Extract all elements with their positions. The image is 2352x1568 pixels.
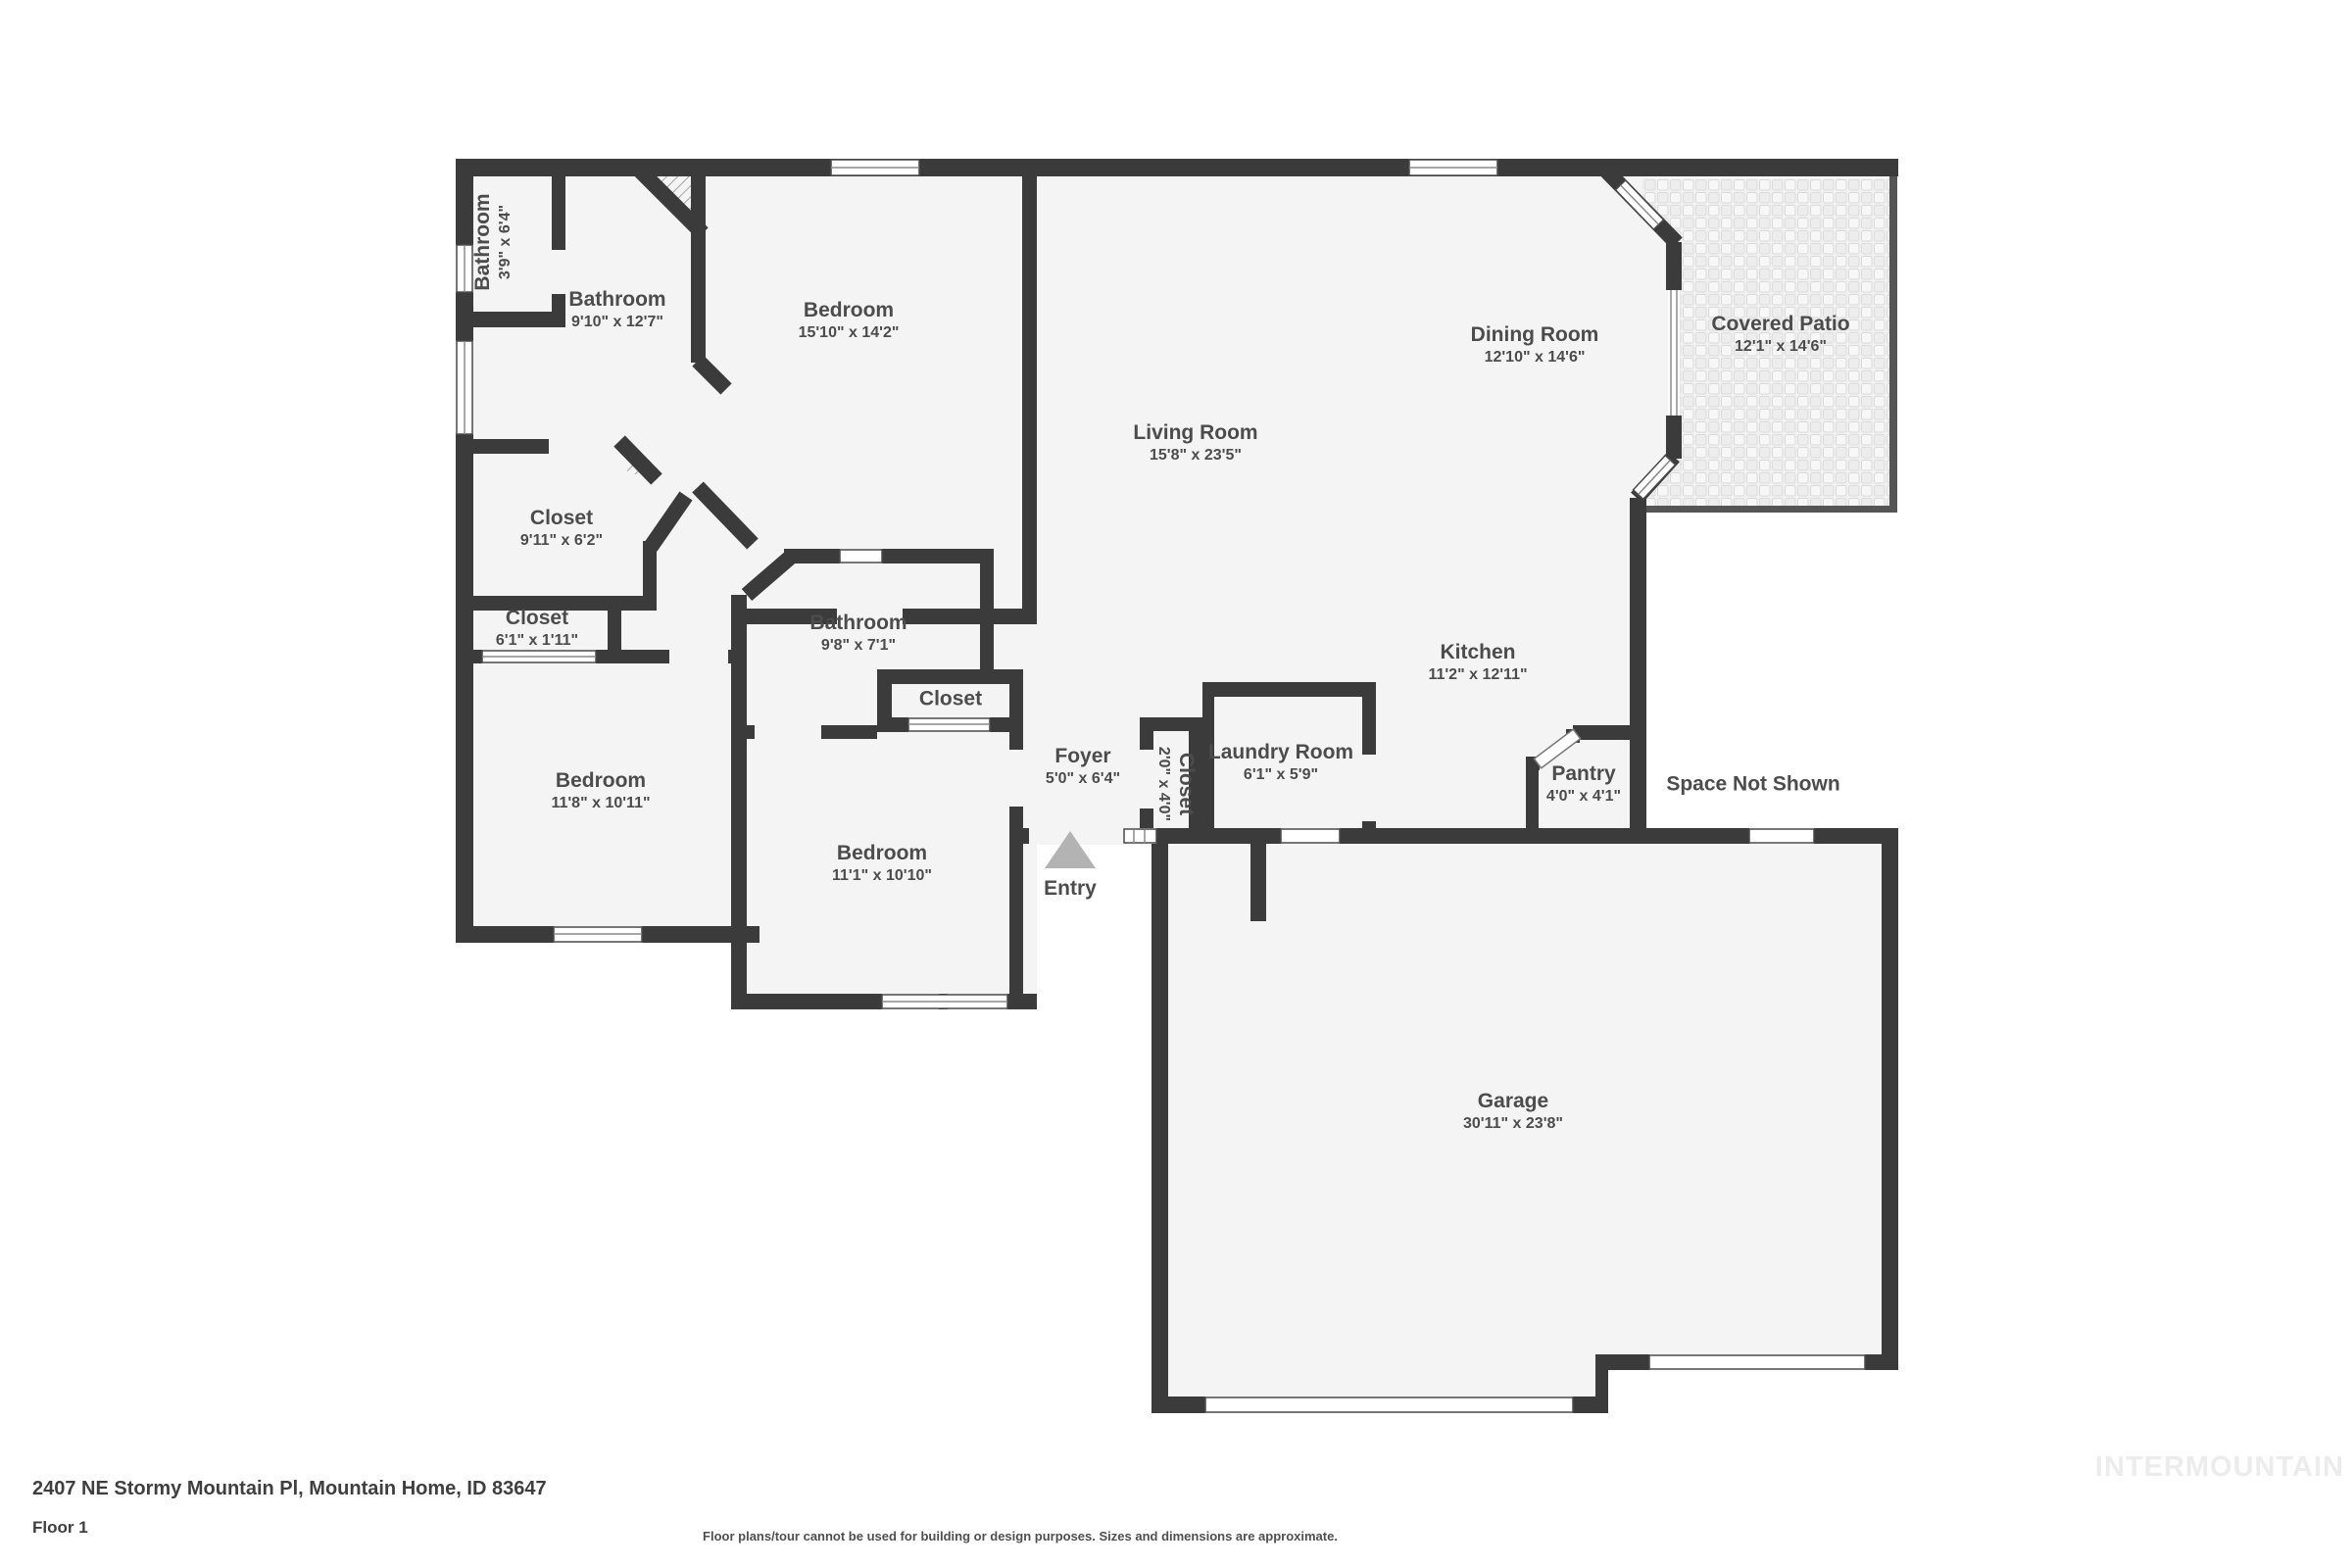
room-label-covered-patio: Covered Patio 12'1" x 14'6" xyxy=(1711,312,1849,357)
intermountain-watermark: INTERMOUNTAIN xyxy=(2095,1451,2344,1484)
room-label-garage: Garage 30'11" x 23'8" xyxy=(1463,1089,1563,1134)
room-label-laundry-room: Laundry Room 6'1" x 5'9" xyxy=(1208,740,1353,785)
room-label-bedroom-top: Bedroom 15'10" x 14'2" xyxy=(799,298,900,343)
room-label-closet-large: Closet 9'11" x 6'2" xyxy=(520,506,603,551)
room-label-bathroom-hall: Bathroom 9'8" x 7'1" xyxy=(809,611,906,656)
room-label-bedroom-center: Bedroom 11'1" x 10'10" xyxy=(832,841,932,886)
entry-label: Entry xyxy=(1044,877,1097,901)
disclaimer-text: Floor plans/tour cannot be used for buil… xyxy=(703,1529,1338,1543)
floor-plan-page: Bathroom 3'9" x 6'4" Bathroom 9'10" x 12… xyxy=(0,0,2352,1568)
room-label-living-room: Living Room 15'8" x 23'5" xyxy=(1133,420,1257,465)
floor-number-label: Floor 1 xyxy=(32,1518,88,1538)
room-label-pantry: Pantry 4'0" x 4'1" xyxy=(1546,761,1621,807)
room-label-bedroom-left: Bedroom 11'8" x 10'11" xyxy=(551,768,650,813)
property-address: 2407 NE Stormy Mountain Pl, Mountain Hom… xyxy=(32,1478,547,1500)
room-label-closet-foyer: Closet 2'0" x 4'0" xyxy=(1153,747,1199,821)
room-label-dining-room: Dining Room 12'10" x 14'6" xyxy=(1471,322,1599,367)
patio-wall-bottom xyxy=(1639,506,1897,513)
patio-wall-right xyxy=(1889,176,1897,513)
room-label-closet-narrow: Closet 6'1" x 1'11" xyxy=(496,606,578,651)
room-label-kitchen: Kitchen 11'2" x 12'11" xyxy=(1428,640,1527,685)
room-label-closet-bedroom: Closet xyxy=(919,687,982,711)
room-label-bathroom-small: Bathroom 3'9" x 6'4" xyxy=(470,193,515,290)
room-label-bathroom-main: Bathroom 9'10" x 12'7" xyxy=(568,287,665,332)
room-label-space-not-shown: Space Not Shown xyxy=(1666,772,1839,797)
room-label-foyer: Foyer 5'0" x 6'4" xyxy=(1046,744,1120,789)
